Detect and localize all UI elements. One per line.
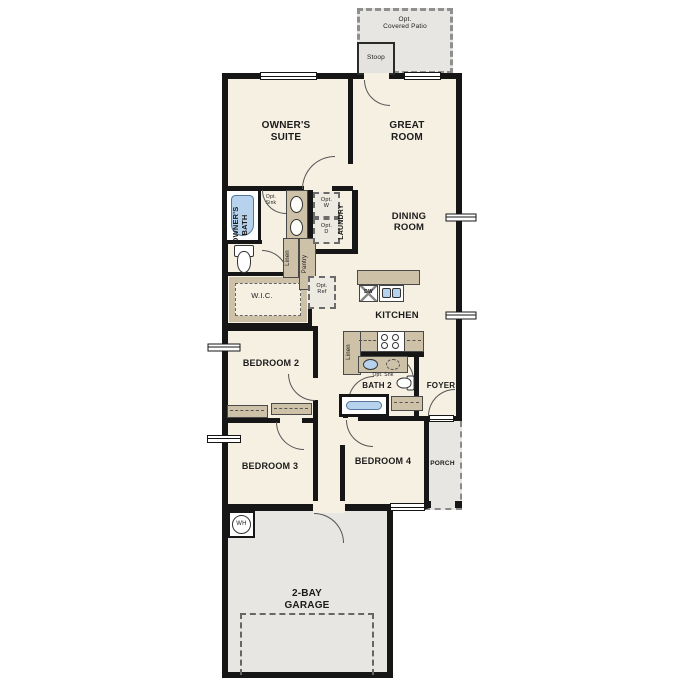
burner-icon [392,342,399,349]
wic-label: W.I.C. [234,292,290,301]
opt-dryer-label: Opt. D [313,223,340,236]
porch-label: PORCH [425,460,460,467]
opt-ref-label: Opt. Ref [308,283,336,296]
kitchen-sink [379,285,404,302]
closet-rod-dash [394,402,419,403]
interior-wall [222,418,280,423]
water-heater-icon: WH [228,511,255,538]
window [404,72,441,80]
closet-rod-dash [274,408,308,409]
burner-icon [381,334,388,341]
dishwasher-label: DW [360,290,377,296]
dining-room-label: DINING ROOM [373,212,445,234]
range-icon [377,331,405,352]
window [446,214,477,222]
laundry-label: LAUNDRY [338,193,352,251]
pantry-label: Pantry [302,246,314,282]
opt-washer-label: Opt. W [313,197,340,210]
interior-wall [352,190,358,254]
dishwasher: DW [359,285,378,302]
porch-post [455,501,462,508]
front-door [429,415,454,422]
bedroom3-label: BEDROOM 3 [229,461,311,471]
interior-wall [313,328,318,378]
bedroom2-label: BEDROOM 2 [230,358,312,368]
optional-sink-outline [386,359,400,370]
opt-sink-label: Opt. Sink [258,195,284,207]
owners-vanity [286,190,308,242]
covered-patio-label: Opt. Covered Patio [363,16,447,31]
floor-plan: Opt. Covered Patio Stoop [0,0,687,687]
interior-wall [348,79,353,164]
sink-oval-icon [290,196,303,213]
interior-wall [332,186,353,191]
kitchen-island [357,270,420,285]
bath2-tub [339,394,389,417]
bedroom4-label: BEDROOM 4 [344,456,422,466]
window [207,435,241,443]
porch-post [424,501,431,508]
bath2-label: BATH 2 [354,381,400,390]
optional-counter-dash [407,340,421,341]
burner-icon [381,342,388,349]
owners-bath-label: OWNER'S BATH [232,195,258,255]
bath2-sink [363,359,378,370]
bath2-vanity [358,356,408,373]
foyer-label: FOYER [420,381,462,390]
window [260,72,317,80]
linen2-label: Linen [346,334,358,370]
bedroom2-closet [227,405,268,418]
great-room-label: GREAT ROOM [371,120,443,143]
optional-counter-dash [359,340,376,341]
sink-oval-icon [290,219,303,236]
sink-basin [392,288,401,298]
window [390,503,425,511]
garage-door-dashed [240,613,374,675]
water-heater-label: WH [230,521,253,528]
garage-label: 2-BAY GARAGE [247,588,367,611]
opt-snk-label: Opt. Snk [366,373,400,379]
sink-basin [382,288,391,298]
interior-wall [313,423,318,505]
linen-label: Linen [285,240,297,276]
hall-to-garage-opening [313,501,345,513]
window [446,312,477,320]
window [208,344,241,352]
tub-water [346,401,382,410]
owners-suite-label: OWNER'S SUITE [250,120,322,143]
kitchen-label: KITCHEN [361,311,433,322]
bedroom2-closet [271,403,312,415]
closet-shelf [391,396,423,411]
closet-rod-dash [230,410,264,411]
burner-icon [392,334,399,341]
stoop-label: Stoop [358,54,394,61]
door-opening [364,73,389,80]
